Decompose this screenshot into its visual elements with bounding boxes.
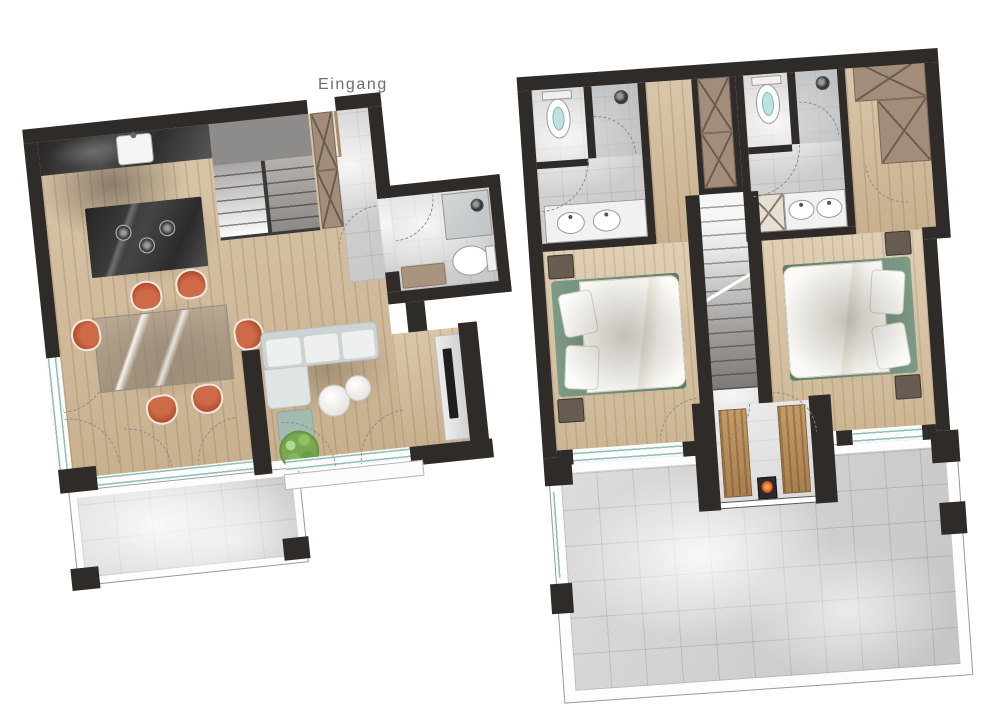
floorplan-canvas: Eingang (0, 0, 1000, 716)
door-swing-arc (593, 113, 636, 156)
wall (836, 430, 853, 446)
sofa-chaise (264, 365, 312, 409)
arc-curve (356, 409, 411, 464)
door-swing-arc (289, 111, 340, 162)
arc-curve (593, 113, 636, 156)
arc-curve (750, 144, 803, 197)
door-swing-arc (657, 397, 702, 442)
sofa-cushion (264, 336, 303, 369)
arc-curve (59, 358, 114, 413)
ground-floor-plan (11, 72, 529, 598)
wall (405, 301, 427, 333)
toilet-seat (552, 106, 566, 131)
nightstand (547, 254, 575, 280)
door-swing-arc (799, 99, 840, 140)
nightstand (884, 230, 912, 256)
vanity (401, 262, 447, 288)
wall (58, 466, 98, 494)
door-swing-arc (65, 414, 120, 469)
wall (930, 429, 960, 463)
arc-curve (281, 417, 336, 472)
door-swing-arc (772, 389, 817, 434)
door-swing-arc (124, 424, 172, 472)
arc-curve (124, 424, 172, 472)
arc-curve (718, 404, 752, 438)
wardrobe (697, 77, 733, 134)
arc-curve (289, 111, 340, 162)
dining-table (92, 304, 234, 393)
wall (550, 583, 574, 614)
toilet-seat (761, 92, 775, 117)
wardrobe (877, 97, 931, 164)
sofa-cushion (302, 332, 341, 365)
wall (385, 271, 401, 292)
upper-floor-plan (506, 37, 990, 716)
wall (922, 226, 951, 240)
nightstand (557, 398, 585, 424)
wall (939, 501, 967, 535)
wall (70, 566, 100, 591)
kitchen-sink (115, 132, 154, 166)
wall (282, 536, 310, 561)
door-swing-arc (194, 417, 242, 465)
nightstand (894, 374, 922, 400)
arc-curve (392, 195, 438, 241)
sofa-cushion (340, 328, 377, 360)
door-swing-arc (334, 205, 382, 253)
arc-curve (772, 389, 817, 434)
door-swing-arc (750, 144, 803, 197)
door-swing-arc (718, 404, 752, 438)
door-swing-arc (538, 159, 591, 212)
arc-curve (657, 397, 702, 442)
door-swing-arc (356, 409, 411, 464)
door-swing-arc (866, 162, 909, 205)
shower (441, 189, 493, 240)
wardrobe (701, 131, 737, 188)
stair-flight (265, 156, 320, 235)
wall (543, 457, 573, 487)
arc-curve (866, 162, 909, 205)
door-swing-arc (59, 358, 114, 413)
door-swing-arc (281, 417, 336, 472)
stair-flight (213, 161, 268, 240)
door-swing-arc (392, 195, 438, 241)
arc-curve (538, 159, 591, 212)
arc-curve (799, 99, 840, 140)
arc-curve (334, 205, 382, 253)
arc-curve (194, 417, 242, 465)
arc-curve (65, 414, 120, 469)
